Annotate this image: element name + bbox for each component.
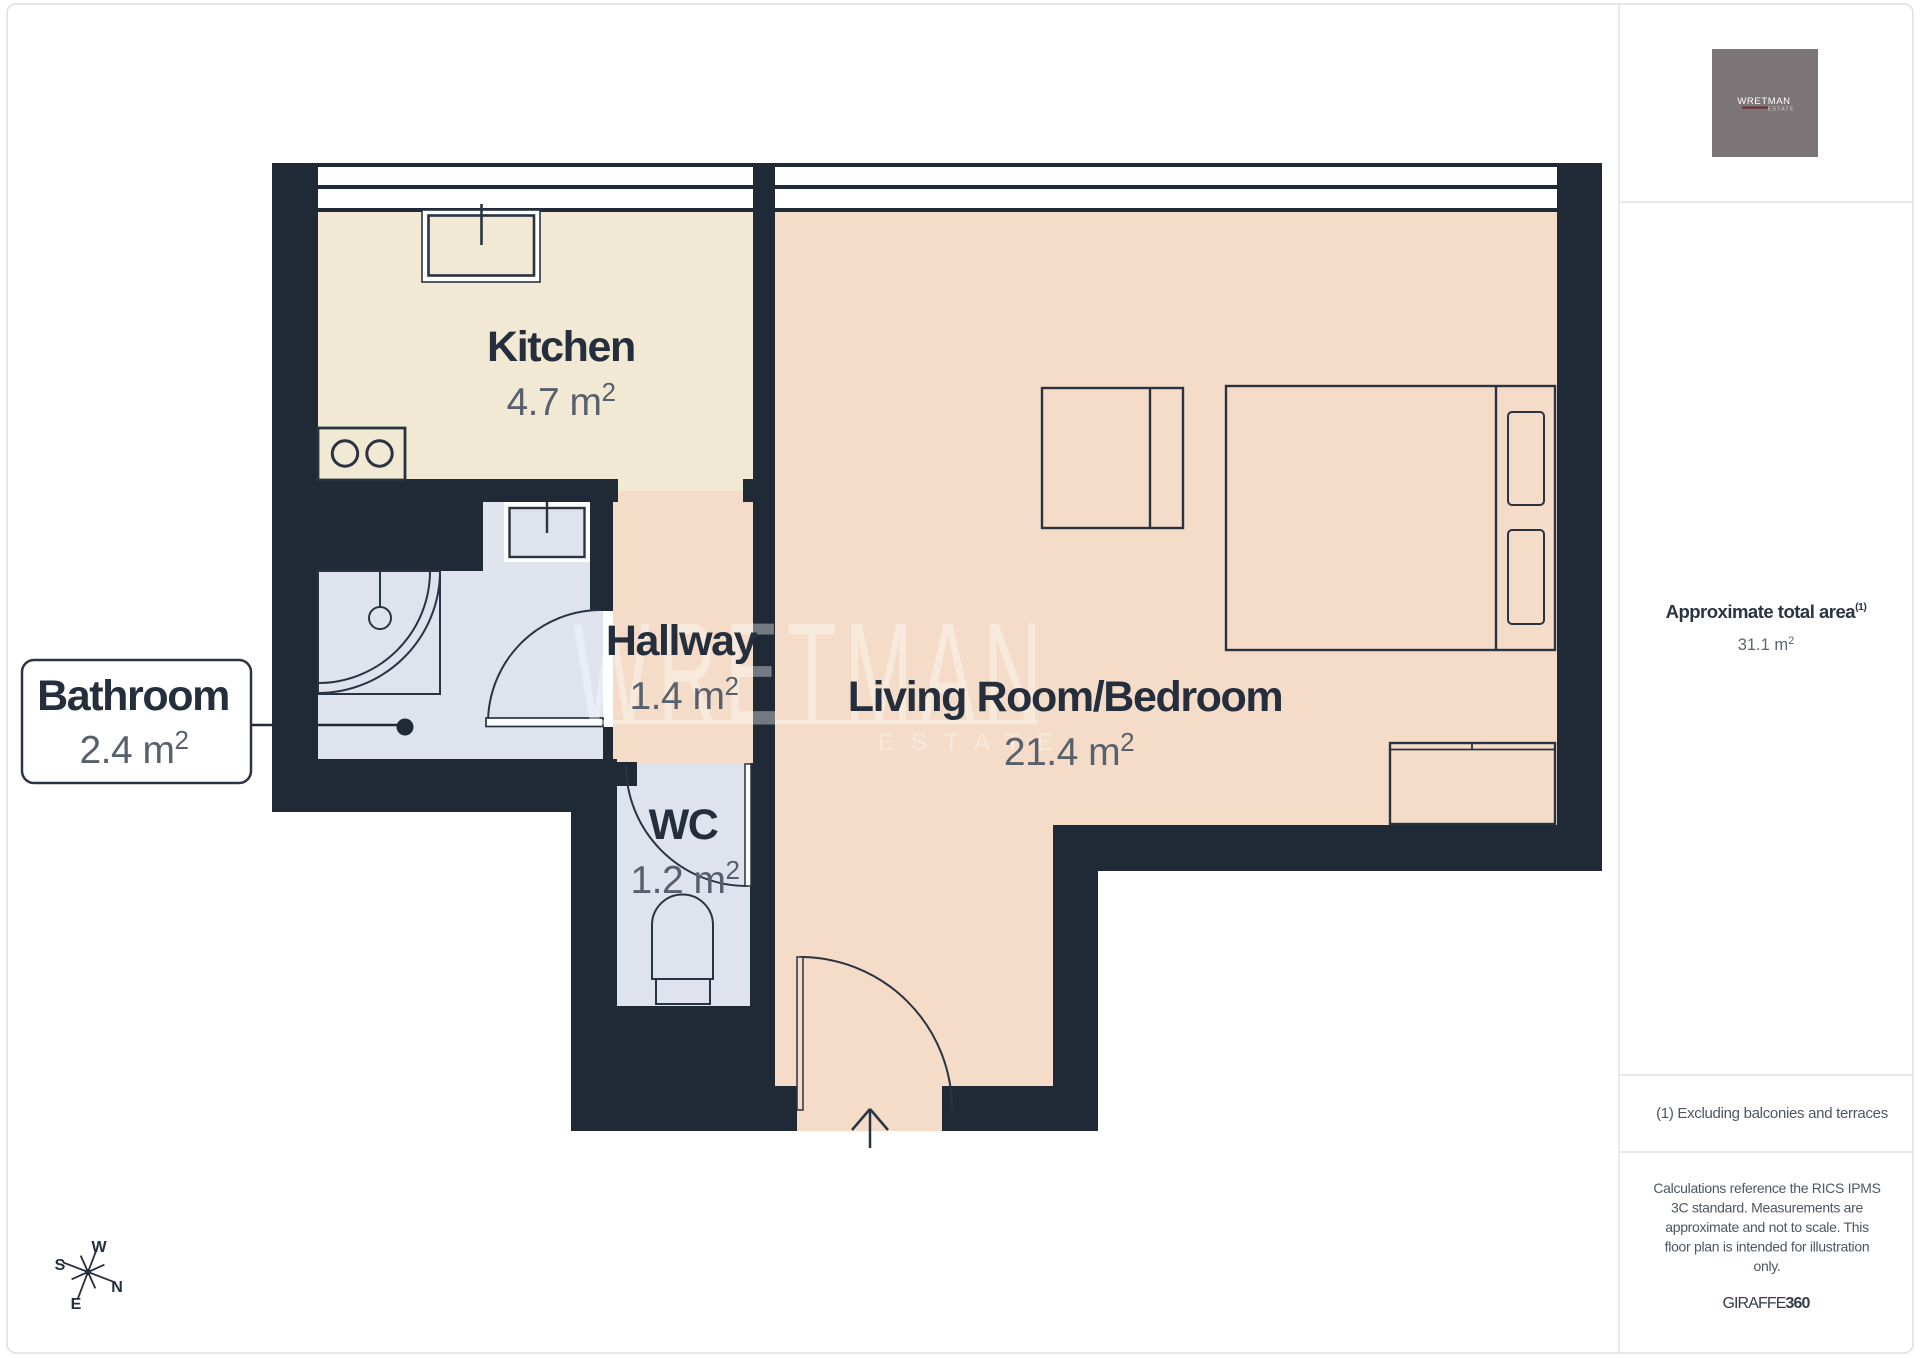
svg-text:N: N [111, 1279, 123, 1296]
svg-text:3C standard. Measurements are: 3C standard. Measurements are [1671, 1200, 1864, 1216]
svg-text:4.7 m2: 4.7 m2 [506, 377, 615, 424]
svg-text:21.4 m2: 21.4 m2 [1004, 727, 1134, 774]
svg-text:Calculations reference the RIC: Calculations reference the RICS IPMS [1653, 1180, 1880, 1196]
svg-text:W: W [91, 1239, 107, 1256]
svg-text:GIRAFFE360: GIRAFFE360 [1722, 1295, 1810, 1312]
svg-text:Bathroom: Bathroom [37, 672, 229, 720]
svg-text:1.2 m2: 1.2 m2 [630, 855, 739, 902]
svg-text:ESTATE: ESTATE [1768, 107, 1795, 113]
svg-text:2.4 m2: 2.4 m2 [79, 725, 188, 772]
svg-text:WC: WC [649, 801, 718, 849]
svg-text:Kitchen: Kitchen [487, 323, 635, 371]
svg-text:1.4 m2: 1.4 m2 [629, 671, 738, 718]
svg-text:approximate and not to scale.: approximate and not to scale. This [1665, 1219, 1869, 1235]
svg-text:(1) Excluding balconies and te: (1) Excluding balconies and terraces [1656, 1105, 1888, 1122]
svg-text:only.: only. [1753, 1258, 1780, 1274]
svg-text:E: E [71, 1296, 82, 1313]
svg-text:Living Room/Bedroom: Living Room/Bedroom [848, 673, 1282, 721]
svg-text:S: S [55, 1257, 66, 1274]
svg-text:floor plan is intended for ill: floor plan is intended for illustration [1665, 1239, 1870, 1255]
svg-text:WRETMAN: WRETMAN [1737, 96, 1790, 107]
svg-text:31.1 m2: 31.1 m2 [1738, 635, 1795, 654]
svg-text:Hallway: Hallway [606, 617, 758, 665]
svg-text:Approximate total area(1): Approximate total area(1) [1666, 601, 1867, 622]
